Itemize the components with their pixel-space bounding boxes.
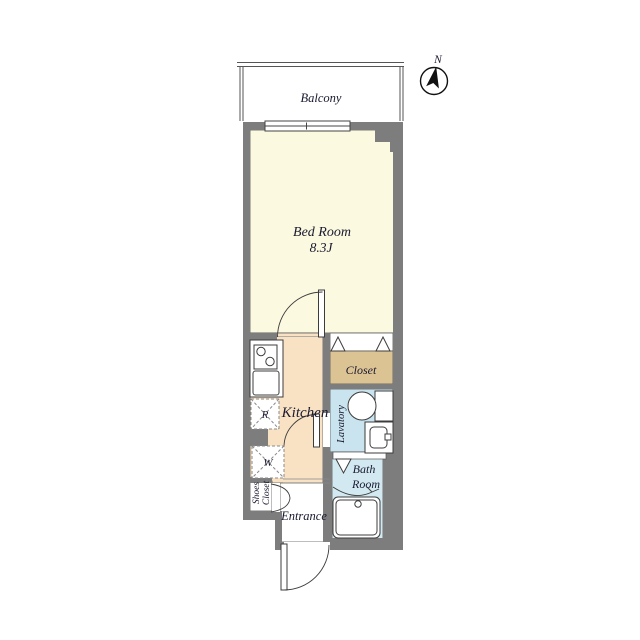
- floor-plan-drawing: N Balcony Bed Room 8.3J Kitchen Closet L…: [0, 0, 640, 640]
- lavatory-label: Lavatory: [336, 405, 347, 444]
- balcony-label: Balcony: [301, 91, 342, 105]
- entrance-label: Entrance: [280, 509, 327, 523]
- stove-burner-1: [257, 347, 265, 355]
- north-compass: [421, 66, 448, 95]
- wall-bath-entrance: [323, 452, 332, 550]
- wall-closet-lavatory: [323, 384, 393, 389]
- washbasin-faucet: [385, 434, 391, 440]
- shoes-closet-door-space: [272, 483, 280, 512]
- wall-bedroom-counter-stub: [250, 333, 277, 340]
- closet-label: Closet: [346, 363, 377, 377]
- floor-plan: N Balcony Bed Room 8.3J Kitchen Closet L…: [0, 0, 640, 640]
- bathroom-label-line1: Bath: [353, 462, 376, 476]
- bathroom-label-line2: Room: [351, 477, 380, 491]
- toilet-bowl: [348, 392, 376, 420]
- refrigerator-label: R: [261, 409, 269, 421]
- bedroom-door-leaf: [319, 290, 325, 337]
- kitchen-sink: [253, 371, 279, 395]
- balcony-rail-top: [237, 63, 404, 67]
- wall-right: [393, 122, 403, 550]
- bedroom-size-label: 8.3J: [310, 240, 334, 255]
- entrance-doorway: [284, 542, 330, 550]
- bathtub-drain: [355, 501, 361, 507]
- wall-kitchen-jog: [250, 429, 268, 446]
- north-label: N: [433, 54, 443, 66]
- entrance-door-swing: [284, 545, 329, 590]
- entrance-door-leaf: [281, 544, 287, 590]
- wall-left: [243, 122, 250, 518]
- washer-label: W: [263, 457, 273, 469]
- bedroom-label: Bed Room: [293, 225, 351, 240]
- shoes-closet-label-line1: Shoes: [252, 482, 262, 504]
- wall-top-mid: [350, 122, 375, 130]
- toilet-tank: [375, 391, 393, 421]
- stove-burner-2: [266, 357, 274, 365]
- wall-bath-right: [383, 452, 393, 550]
- balcony-rail-left: [240, 67, 243, 122]
- balcony-rail-right: [400, 67, 403, 122]
- kitchen-label: Kitchen: [281, 405, 329, 421]
- washbasin-bowl: [370, 427, 387, 448]
- wall-bottom-left-cap: [243, 511, 275, 520]
- shoes-closet-label-line2: Closet: [262, 481, 272, 506]
